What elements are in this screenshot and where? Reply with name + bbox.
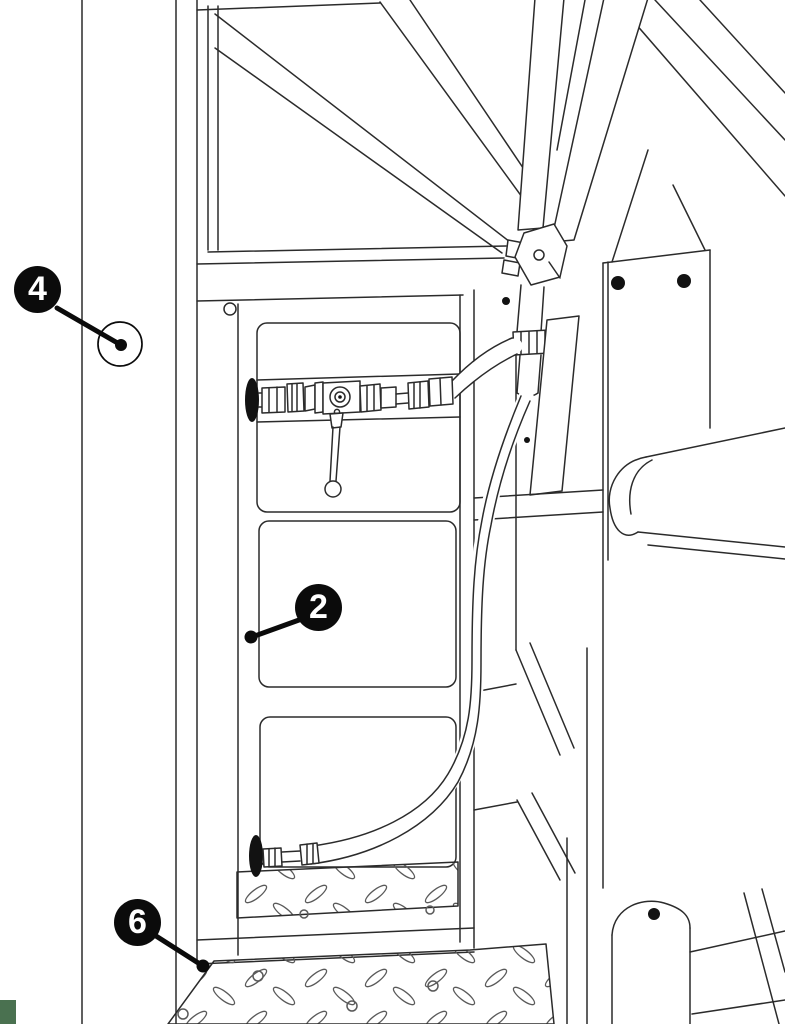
callout-badge-2: 2 (295, 584, 342, 631)
top-right-beam (612, 0, 785, 262)
callout-badge-4: 4 (14, 266, 61, 313)
bottom-right-cylinders (612, 889, 785, 1024)
callout-label-2: 2 (309, 590, 328, 624)
valve-handle (330, 413, 343, 428)
callout-badge-6: 6 (114, 899, 161, 946)
right-interior-structure (474, 297, 603, 1024)
bulkhead-grommet (249, 835, 263, 877)
right-panel (603, 250, 710, 888)
ball-valve-assembly (245, 377, 453, 497)
callout-label-6: 6 (128, 905, 147, 939)
callout-label-4: 4 (28, 272, 47, 306)
line-art-canvas (0, 0, 785, 1024)
bulkhead-grommet (245, 378, 259, 422)
kick-plate (237, 862, 458, 918)
right-horizontal-tube (609, 428, 785, 559)
diagonal-braces (215, 0, 542, 253)
corner-mark (0, 1000, 16, 1024)
lower-hose (311, 396, 530, 864)
floor-plate (168, 944, 554, 1024)
upper-hose (452, 338, 517, 398)
panel-hole (224, 303, 236, 315)
technical-illustration-figure: 4 2 6 (0, 0, 785, 1024)
tube-bundle (518, 0, 648, 242)
